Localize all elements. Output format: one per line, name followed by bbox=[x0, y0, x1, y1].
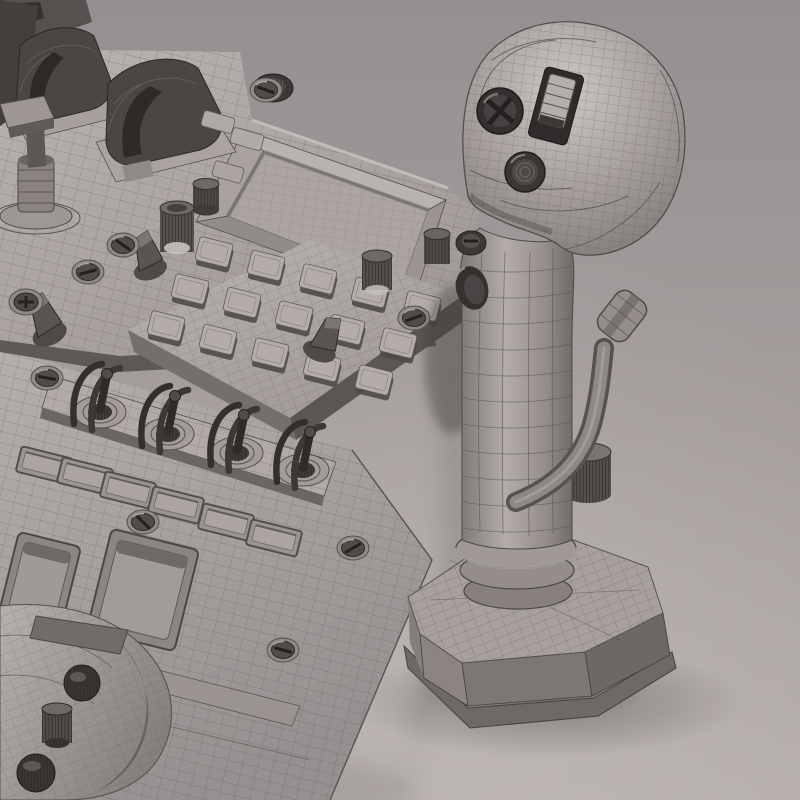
hat-button bbox=[477, 88, 523, 134]
panel-screw bbox=[398, 306, 430, 330]
round-button bbox=[505, 152, 545, 192]
panel-screw bbox=[72, 260, 104, 284]
wireframe-render bbox=[0, 0, 800, 800]
panel-screw bbox=[127, 510, 159, 534]
panel-screw bbox=[267, 638, 299, 662]
panel-screw bbox=[107, 233, 139, 257]
knurled-knob bbox=[424, 229, 450, 265]
dome-button bbox=[64, 665, 100, 701]
panel-screw bbox=[250, 78, 282, 102]
knurled-knob bbox=[42, 703, 72, 748]
knurled-knob bbox=[362, 250, 392, 295]
panel-screw bbox=[337, 536, 369, 560]
junction-screw bbox=[456, 231, 486, 255]
render-viewport: Untextured wireframe 3D render of a cock… bbox=[0, 0, 800, 800]
panel-screw bbox=[31, 366, 63, 390]
knurled-knob bbox=[193, 179, 219, 216]
phillips-screw bbox=[9, 289, 43, 315]
dome-button bbox=[17, 754, 55, 792]
knurled-knob bbox=[160, 201, 194, 254]
